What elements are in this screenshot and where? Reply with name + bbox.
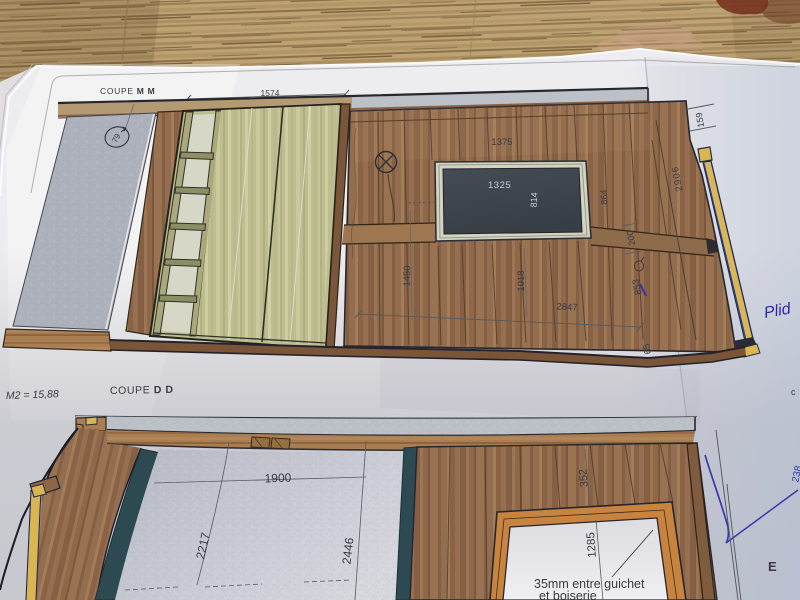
svg-text:M2 = 15,88: M2 = 15,88: [6, 388, 59, 402]
svg-text:814: 814: [529, 192, 540, 207]
svg-text:1375: 1375: [491, 137, 512, 148]
svg-text:2847: 2847: [556, 301, 578, 313]
svg-text:1285: 1285: [585, 532, 599, 558]
svg-text:352: 352: [577, 468, 591, 487]
svg-text:1325: 1325: [488, 180, 511, 191]
svg-text:E: E: [768, 559, 777, 574]
svg-text:65: 65: [641, 343, 654, 355]
svg-text:864: 864: [599, 189, 610, 205]
svg-text:1900: 1900: [264, 471, 291, 486]
svg-text:COUPE M M: COUPE M M: [100, 86, 155, 96]
svg-text:et boiserie: et boiserie: [539, 589, 597, 600]
svg-text:c: c: [791, 387, 796, 397]
svg-text:COUPE D D: COUPE D D: [110, 384, 174, 397]
